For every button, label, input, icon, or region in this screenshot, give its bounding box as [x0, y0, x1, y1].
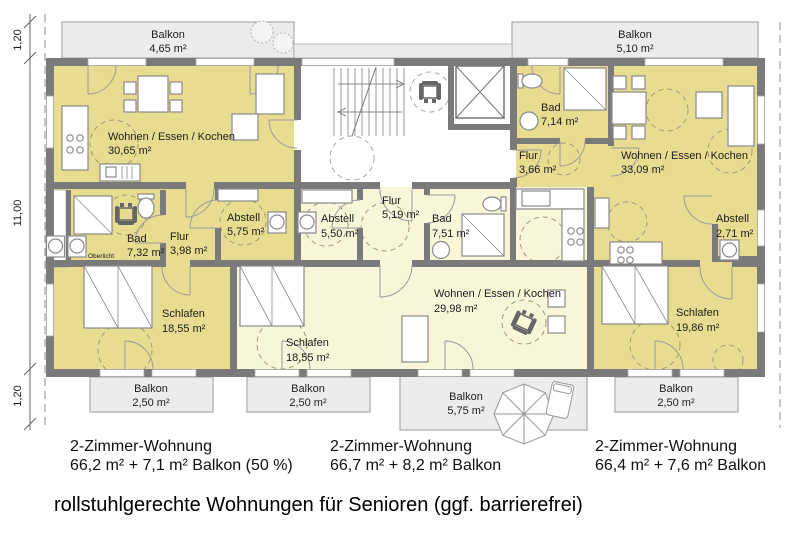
room-left-flur-label: Flur [170, 231, 189, 243]
room-middle-abstell-label: Abstell [321, 213, 354, 225]
unit-title: 2-Zimmer-Wohnung [70, 437, 293, 456]
balcony-bottom-mid-right-area: 5,75 m² [447, 405, 485, 417]
room-left-wohnen-area: 30,65 m² [108, 145, 152, 157]
balcony-top-left-area: 4,65 m² [149, 43, 187, 55]
room-left-abstell-label: Abstell [227, 212, 260, 224]
storage-right-icon [720, 240, 739, 260]
room-left-abstell-area: 5,75 m² [227, 226, 265, 238]
room-left-flur-area: 3,98 m² [170, 245, 208, 257]
room-left-schlafen-label: Schlafen [162, 308, 205, 320]
room-right-flur-area: 3,66 m² [519, 164, 557, 176]
balcony-bottom-mid-right-label: Balkon [449, 391, 483, 403]
balcony-bottom-left-area: 2,50 m² [132, 397, 170, 409]
umbrella-icon [494, 384, 554, 444]
room-left-bad-label: Bad [127, 233, 147, 245]
unit-detail: 66,2 m² + 7,1 m² Balkon (50 %) [70, 456, 293, 475]
room-middle-abstell-area: 5,50 m² [321, 228, 359, 240]
room-right-bad-area: 7,14 m² [541, 116, 579, 128]
unit-title: 2-Zimmer-Wohnung [595, 437, 766, 456]
balcony-top-right-label: Balkon [618, 29, 652, 41]
room-middle-flur-area: 5,19 m² [382, 209, 420, 221]
unit-summary-right: 2-Zimmer-Wohnung 66,4 m² + 7,6 m² Balkon [595, 437, 766, 475]
balcony-bottom-right-area: 2,50 m² [657, 397, 695, 409]
room-left-oberlicht-label: Oberlicht [88, 253, 114, 260]
dim-top: 1,20 [12, 29, 24, 50]
room-left-bad-area: 7,32 m² [127, 247, 165, 259]
balcony-top-left-label: Balkon [151, 29, 185, 41]
unit-summary-middle: 2-Zimmer-Wohnung 66,7 m² + 8,2 m² Balkon [330, 437, 501, 475]
room-right-schlafen-area: 19,86 m² [676, 322, 720, 334]
room-right-wohnen-area: 33,09 m² [621, 164, 665, 176]
dimension-labels: 1,20 11,00 1,20 [12, 29, 24, 406]
balcony-bottom-mid-left-label: Balkon [291, 383, 325, 395]
room-right-bad-label: Bad [541, 102, 561, 114]
bed-right-icon [602, 266, 668, 324]
entrance-band [294, 44, 512, 58]
room-middle-flur-label: Flur [382, 195, 401, 207]
room-right-wohnen-label: Wohnen / Essen / Kochen [621, 150, 748, 162]
unit-title: 2-Zimmer-Wohnung [330, 437, 501, 456]
unit-summary-left: 2-Zimmer-Wohnung 66,2 m² + 7,1 m² Balkon… [70, 437, 293, 475]
room-right-abstell-area: 2,71 m² [716, 228, 754, 240]
room-middle-wohnen-area: 29,98 m² [434, 303, 478, 315]
room-left-schlafen-area: 18,55 m² [162, 323, 206, 335]
balcony-bottom-right-label: Balkon [659, 383, 693, 395]
room-right-flur-label: Flur [519, 150, 538, 162]
room-middle-wohnen-label: Wohnen / Essen / Kochen [434, 288, 561, 300]
unit-detail: 66,7 m² + 8,2 m² Balkon [330, 456, 501, 475]
dining-table-left-icon [124, 76, 182, 112]
bed-middle-icon [240, 266, 304, 326]
plan-caption: rollstuhlgerechte Wohnungen für Senioren… [54, 494, 583, 517]
balcony-bottom-left-label: Balkon [134, 383, 168, 395]
balcony-top-right-area: 5,10 m² [616, 43, 654, 55]
dim-middle: 11,00 [12, 200, 24, 227]
bed-left-icon [84, 266, 152, 328]
floor-plan-page: 1,20 11,00 1,20 [0, 0, 800, 534]
room-left-wohnen-label: Wohnen / Essen / Kochen [108, 131, 235, 143]
balcony-bottom-mid-left-area: 2,50 m² [289, 397, 327, 409]
room-right-schlafen-label: Schlafen [676, 307, 719, 319]
room-middle-bad-label: Bad [432, 213, 452, 225]
elevator-icon [456, 66, 504, 118]
room-middle-schlafen-label: Schlafen [286, 337, 329, 349]
tree-icon [251, 21, 273, 43]
tree-icon [273, 33, 293, 53]
dim-bottom: 1,20 [12, 385, 24, 406]
unit-detail: 66,4 m² + 7,6 m² Balkon [595, 456, 766, 475]
room-middle-schlafen-area: 18,55 m² [286, 352, 330, 364]
room-right-abstell-label: Abstell [716, 213, 749, 225]
room-middle-bad-area: 7,51 m² [432, 228, 470, 240]
